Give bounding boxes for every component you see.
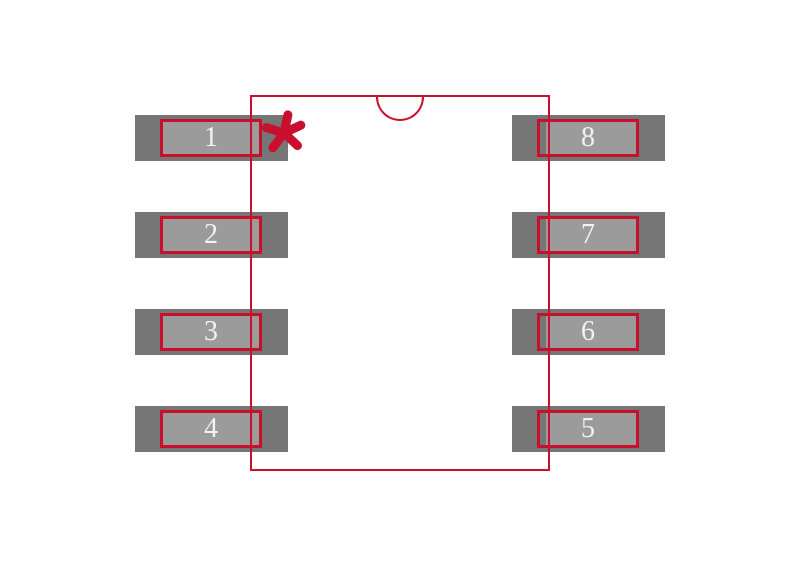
- footprint-canvas: 1 2 3 4 8 7 6 5: [0, 0, 800, 567]
- pad-4: 4: [135, 406, 288, 452]
- pad-2: 2: [135, 212, 288, 258]
- pad-7-paste-area: 7: [537, 216, 639, 254]
- pad-5: 5: [512, 406, 665, 452]
- pad-6: 6: [512, 309, 665, 355]
- pin-number-1: 1: [204, 124, 218, 152]
- pad-8-paste-area: 8: [537, 119, 639, 157]
- pin-number-4: 4: [204, 415, 218, 443]
- pin-number-8: 8: [581, 124, 595, 152]
- pad-5-paste-area: 5: [537, 410, 639, 448]
- pad-6-paste-area: 6: [537, 313, 639, 351]
- pin-number-5: 5: [581, 415, 595, 443]
- pad-3: 3: [135, 309, 288, 355]
- pad-7: 7: [512, 212, 665, 258]
- pad-2-paste-area: 2: [160, 216, 262, 254]
- pad-3-paste-area: 3: [160, 313, 262, 351]
- pin-number-6: 6: [581, 318, 595, 346]
- pin1-marker-icon: [258, 107, 310, 159]
- pad-4-paste-area: 4: [160, 410, 262, 448]
- pin-number-7: 7: [581, 221, 595, 249]
- pin1-notch: [376, 97, 424, 121]
- pad-1-paste-area: 1: [160, 119, 262, 157]
- pin-number-2: 2: [204, 221, 218, 249]
- pad-8: 8: [512, 115, 665, 161]
- pin-number-3: 3: [204, 318, 218, 346]
